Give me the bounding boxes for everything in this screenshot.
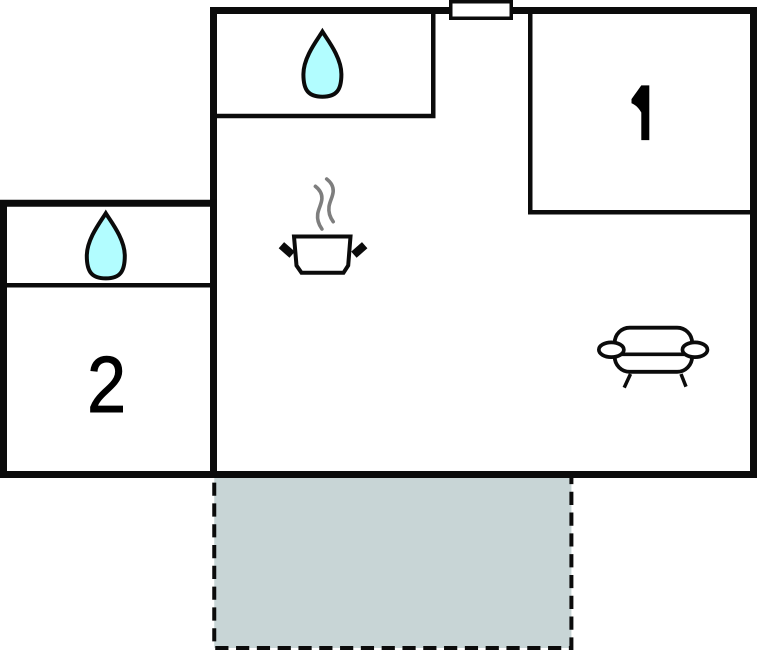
svg-text:2: 2 [87,340,126,429]
